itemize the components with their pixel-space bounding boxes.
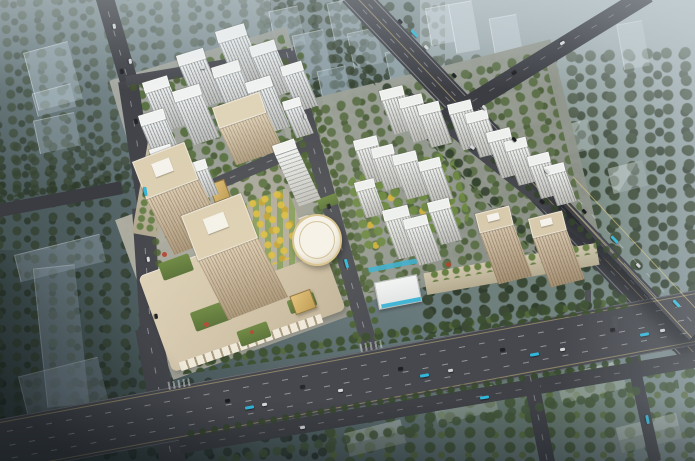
fog-right-edge [560, 0, 695, 461]
warm-light-site [120, 100, 440, 380]
rooftop-structure [487, 212, 500, 222]
vignette-bottom [0, 400, 695, 461]
east-podium-red-shrub [446, 262, 451, 267]
rooftop-structure [540, 217, 553, 227]
aerial-rendering-canvas [0, 0, 695, 461]
